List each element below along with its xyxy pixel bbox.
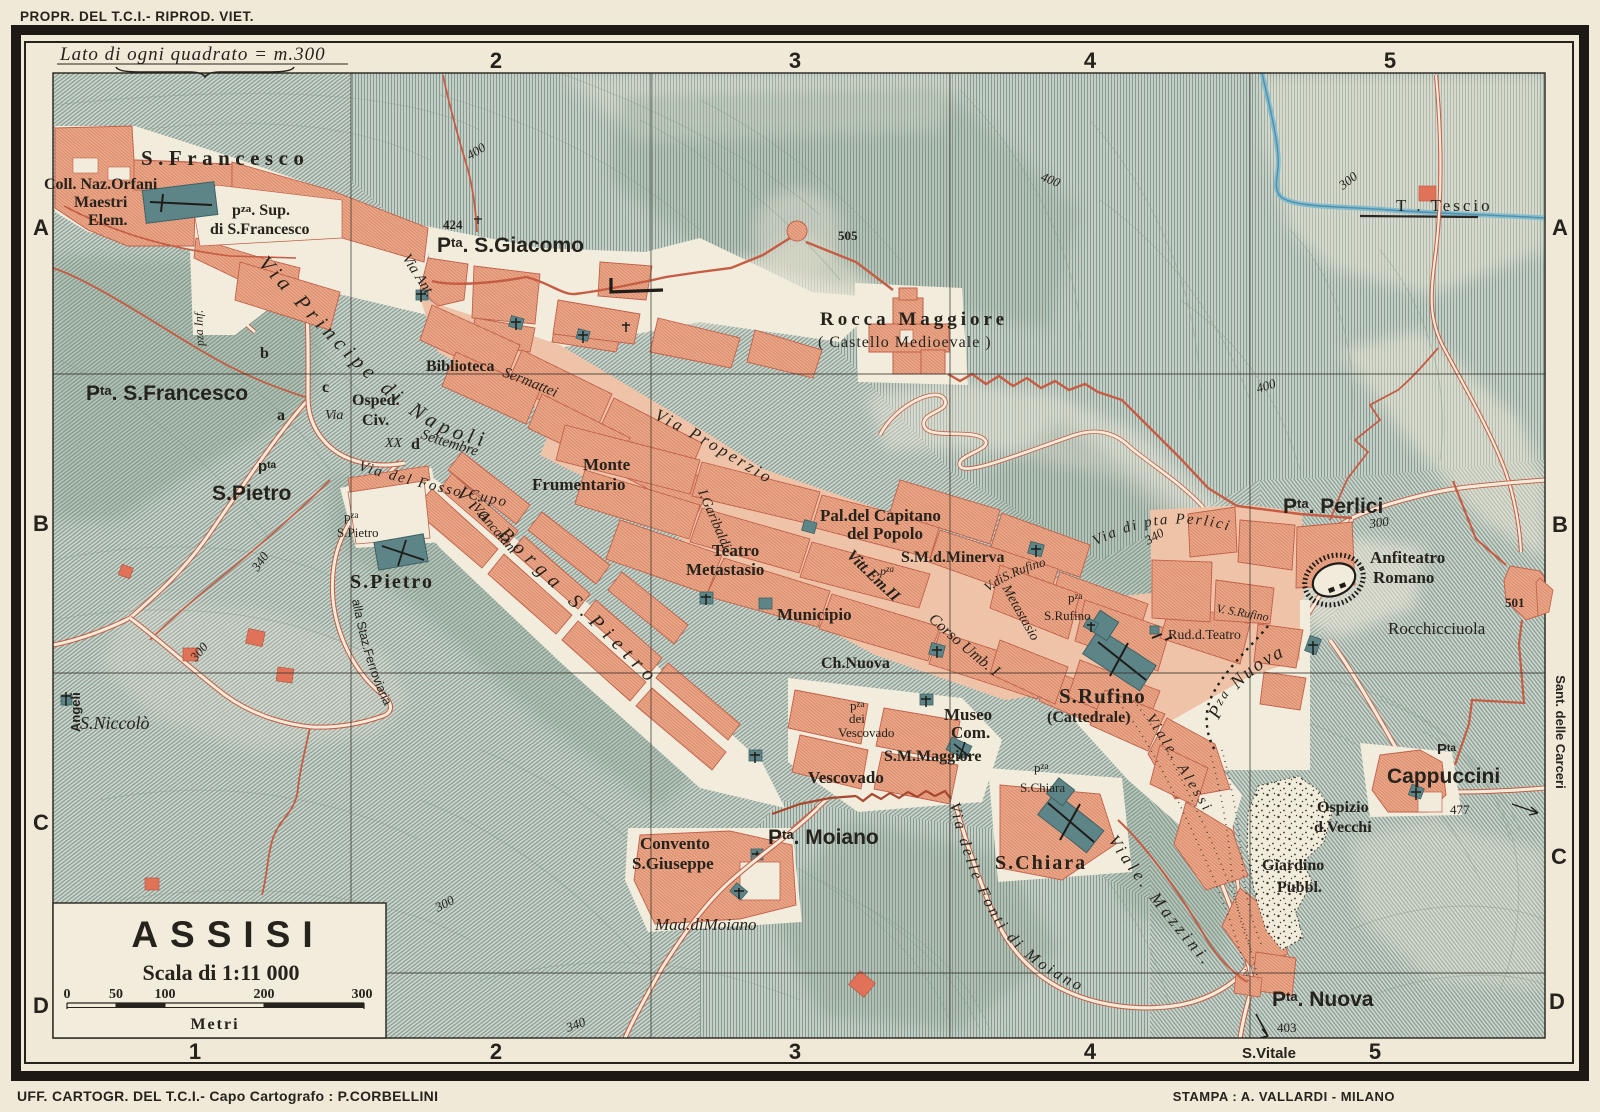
svg-text:T . Tescio: T . Tescio xyxy=(1396,196,1493,215)
svg-text:d.Vecchi: d.Vecchi xyxy=(1314,819,1372,836)
svg-text:b: b xyxy=(260,345,269,362)
svg-text:D: D xyxy=(33,993,49,1018)
svg-text:S.M.Maggiore: S.M.Maggiore xyxy=(884,748,981,765)
svg-text:c: c xyxy=(322,379,329,396)
svg-text:S.Niccolò: S.Niccolò xyxy=(80,713,150,733)
svg-text:Scala di 1:11 000: Scala di 1:11 000 xyxy=(142,960,299,985)
svg-text:d: d xyxy=(411,436,420,453)
svg-text:300: 300 xyxy=(1367,513,1390,531)
svg-text:PROPR. DEL T.C.I.- RIPROD. VIE: PROPR. DEL T.C.I.- RIPROD. VIET. xyxy=(20,9,254,24)
svg-text:Anfiteatro: Anfiteatro xyxy=(1370,548,1445,567)
svg-text:Giardino: Giardino xyxy=(1262,857,1324,874)
svg-text:Convento: Convento xyxy=(640,834,710,853)
svg-text:1: 1 xyxy=(189,1039,201,1064)
svg-text:S.Francesco: S.Francesco xyxy=(141,146,309,170)
svg-text:Rocchicciuola: Rocchicciuola xyxy=(1388,619,1486,638)
svg-text:Museo: Museo xyxy=(944,705,992,724)
svg-text:C: C xyxy=(1551,844,1567,869)
svg-text:Romano: Romano xyxy=(1373,568,1434,587)
svg-text:Angeli: Angeli xyxy=(68,692,83,732)
svg-text:Sant. delle Carceri: Sant. delle Carceri xyxy=(1553,675,1568,788)
svg-text:424: 424 xyxy=(443,217,463,232)
svg-text:4: 4 xyxy=(1084,48,1097,73)
svg-text:UFF. CARTOGR. DEL T.C.I.- Capo: UFF. CARTOGR. DEL T.C.I.- Capo Cartograf… xyxy=(17,1088,438,1104)
svg-text:2: 2 xyxy=(490,1039,502,1064)
svg-text:Frumentario: Frumentario xyxy=(532,475,625,494)
svg-text:D: D xyxy=(1549,989,1565,1014)
svg-text:200: 200 xyxy=(254,987,275,1002)
svg-text:Metri: Metri xyxy=(190,1016,239,1033)
svg-text:S.Pietro: S.Pietro xyxy=(212,482,291,505)
svg-text:Metastasio: Metastasio xyxy=(686,560,764,579)
svg-text:505: 505 xyxy=(838,228,858,243)
svg-text:Pubbl.: Pubbl. xyxy=(1277,879,1322,896)
svg-text:100: 100 xyxy=(155,987,176,1002)
svg-text:pza Inf.: pza Inf. xyxy=(191,309,207,347)
svg-text:Vescovado: Vescovado xyxy=(808,768,884,787)
svg-text:Lato di ogni quadrato = m.300: Lato di ogni quadrato = m.300 xyxy=(59,44,326,65)
svg-text:(Cattedrale): (Cattedrale) xyxy=(1047,709,1131,726)
svg-text:Biblioteca: Biblioteca xyxy=(426,358,494,375)
svg-text:Mad.diMoiano: Mad.diMoiano xyxy=(654,915,757,934)
svg-text:50: 50 xyxy=(109,987,123,1002)
svg-text:S.Vitale: S.Vitale xyxy=(1242,1045,1296,1062)
svg-text:XX: XX xyxy=(384,436,403,451)
svg-text:Vescovado: Vescovado xyxy=(838,725,894,740)
svg-text:Via: Via xyxy=(325,408,343,423)
svg-text:C: C xyxy=(33,810,49,835)
svg-text:403: 403 xyxy=(1277,1020,1297,1035)
svg-text:0: 0 xyxy=(64,987,71,1002)
svg-text:A: A xyxy=(33,215,49,240)
svg-text:Com.: Com. xyxy=(951,723,990,742)
svg-text:Cappuccini: Cappuccini xyxy=(1387,765,1500,788)
svg-text:Rocca Maggiore: Rocca Maggiore xyxy=(820,309,1008,330)
svg-text:Monte: Monte xyxy=(583,455,631,474)
svg-text:Ch.Nuova: Ch.Nuova xyxy=(821,655,890,672)
svg-text:B: B xyxy=(33,511,49,536)
svg-text:3: 3 xyxy=(789,1039,801,1064)
svg-text:ASSISI: ASSISI xyxy=(131,914,324,955)
svg-text:Elem.: Elem. xyxy=(88,212,128,229)
svg-text:2: 2 xyxy=(490,48,502,73)
svg-text:Rud.d.Teatro: Rud.d.Teatro xyxy=(1168,628,1241,643)
svg-text:Ospizio: Ospizio xyxy=(1317,799,1369,816)
svg-text:Pal.del Capitano: Pal.del Capitano xyxy=(820,506,941,525)
svg-text:4: 4 xyxy=(1084,1039,1097,1064)
svg-text:B: B xyxy=(1552,512,1568,537)
svg-text:Osped.: Osped. xyxy=(352,392,400,409)
svg-text:300: 300 xyxy=(352,987,373,1002)
svg-text:S.Chiara: S.Chiara xyxy=(1020,780,1065,795)
svg-text:del Popolo: del Popolo xyxy=(847,524,923,543)
svg-text:477: 477 xyxy=(1450,802,1470,817)
svg-text:( Castello Medioevale ): ( Castello Medioevale ) xyxy=(818,334,992,351)
svg-text:a: a xyxy=(277,407,285,424)
svg-text:A: A xyxy=(1552,215,1568,240)
svg-text:Coll. Naz.Orfani: Coll. Naz.Orfani xyxy=(44,176,158,193)
svg-text:pza. Sup.: pza. Sup. xyxy=(232,202,290,219)
svg-text:S.Rufino: S.Rufino xyxy=(1059,684,1146,708)
svg-text:501: 501 xyxy=(1505,595,1525,610)
svg-text:dei: dei xyxy=(849,711,865,726)
svg-text:S.M.d.Minerva: S.M.d.Minerva xyxy=(901,549,1005,566)
svg-text:di S.Francesco: di S.Francesco xyxy=(210,221,310,238)
svg-text:Civ.: Civ. xyxy=(362,412,389,429)
svg-text:Maestri: Maestri xyxy=(74,194,128,211)
svg-text:STAMPA : A. VALLARDI - MILANO: STAMPA : A. VALLARDI - MILANO xyxy=(1173,1089,1395,1104)
svg-text:S.Pietro: S.Pietro xyxy=(337,525,379,540)
svg-text:S.Rufino: S.Rufino xyxy=(1044,608,1091,623)
svg-text:S.Chiara: S.Chiara xyxy=(995,852,1087,874)
svg-text:S.Giuseppe: S.Giuseppe xyxy=(632,854,714,873)
svg-text:3: 3 xyxy=(789,48,801,73)
svg-text:5: 5 xyxy=(1384,48,1396,73)
svg-text:5: 5 xyxy=(1369,1039,1381,1064)
svg-text:Municipio: Municipio xyxy=(777,605,852,624)
svg-text:Teatro: Teatro xyxy=(712,541,759,560)
svg-text:S.Pietro: S.Pietro xyxy=(350,571,434,593)
